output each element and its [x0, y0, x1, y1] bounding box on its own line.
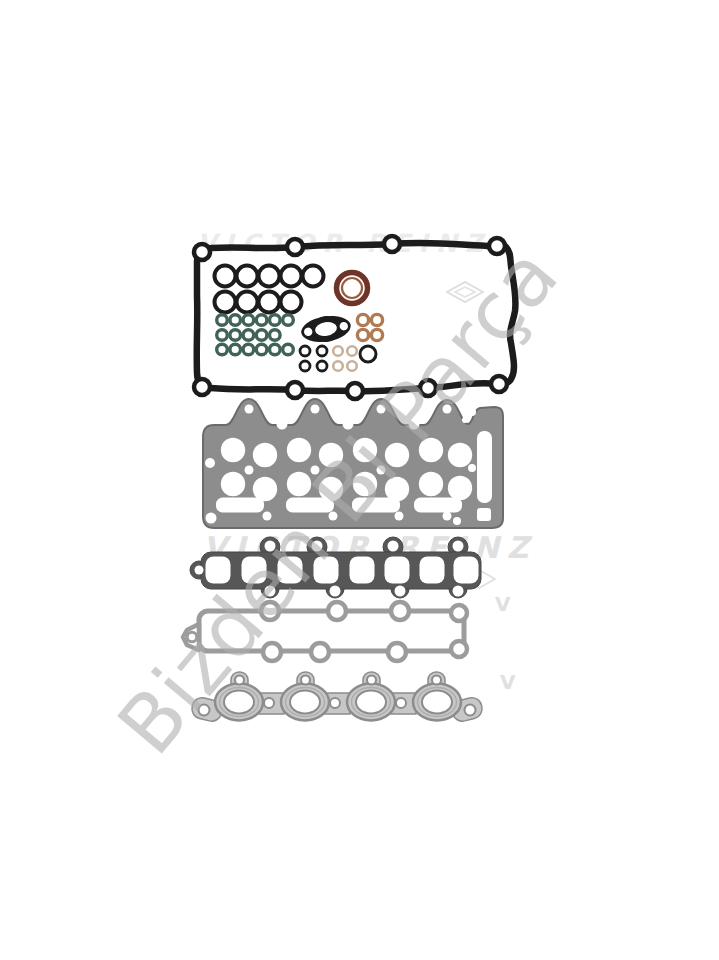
small-seal-ring-cluster: [300, 346, 376, 371]
gasket-set-product-photo: VICTOR REINZ VICTOR REINZ V V: [0, 0, 719, 960]
crankshaft-seal: [337, 273, 368, 304]
flange-gasket: [299, 312, 352, 346]
copper-washer-set: [357, 314, 382, 340]
black-o-ring-set: [215, 266, 324, 313]
green-o-ring-set: [217, 315, 294, 355]
